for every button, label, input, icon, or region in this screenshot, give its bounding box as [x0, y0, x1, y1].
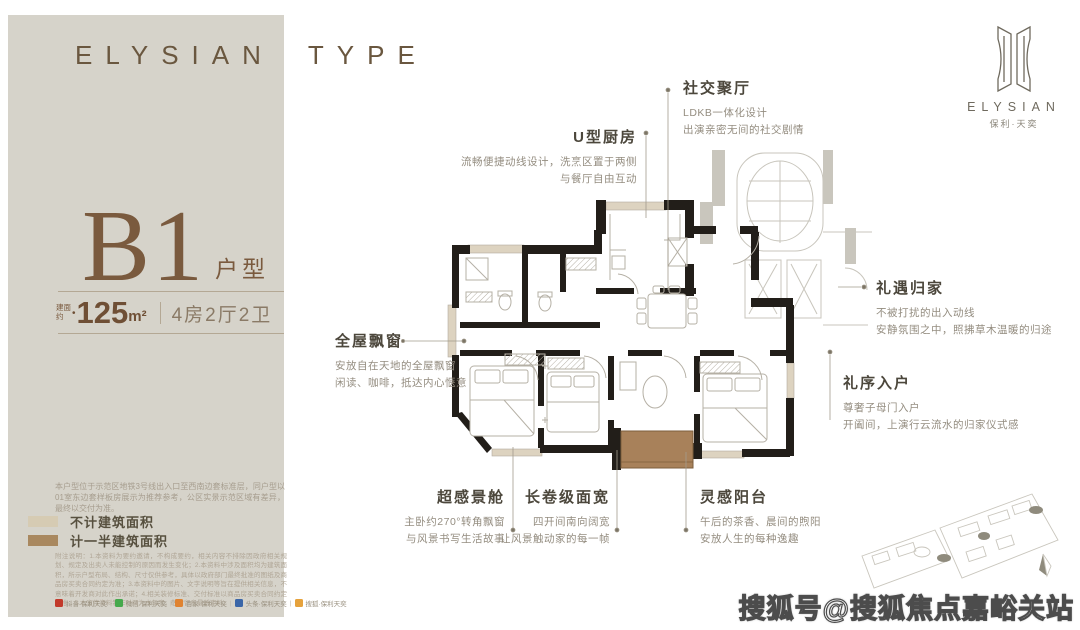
- anno-baywindow: 全屋飘窗 安放自在天地的全屋飘窗 闲读、咖啡，抵达内心惬意: [335, 330, 467, 392]
- social-label: 百家·保利天奕: [186, 598, 227, 608]
- project-logo: ELYSIAN 保利·天奕: [955, 24, 1073, 130]
- anno-entry: 礼序入户 尊奢子母门入户 开阖间，上演行云流水的归家仪式感: [843, 372, 1019, 434]
- site-map: [862, 494, 1058, 588]
- sidebar-note: 本户型位于示范区地铁3号线出入口至西南边套标准层，同户型以01室东边套样板房展示…: [55, 482, 285, 514]
- legend-swatch-light: [28, 516, 58, 527]
- anno-title: 超感景舱: [404, 486, 505, 507]
- anno-title: 长卷级面宽: [500, 486, 610, 507]
- sohu-watermark: 搜狐号@搜狐焦点嘉峪关站: [739, 587, 1074, 626]
- social-label: 搜狐·保利天奕: [306, 598, 347, 608]
- anno-title: U型厨房: [461, 126, 637, 147]
- plan-code-row: B1 户型: [82, 200, 269, 294]
- anno-body: 午后的茶香、晨间的煦阳 安放人生的每种逸趣: [700, 514, 821, 548]
- header-brand: ELYSIAN TYPE: [75, 40, 428, 71]
- brand-type: TYPE: [308, 40, 428, 71]
- legend-row-half-area: 计一半建筑面积: [28, 531, 168, 550]
- layout-spec: 4房2厅2卫: [172, 300, 273, 327]
- social-separator: |: [170, 600, 172, 607]
- sohu-icon: [295, 599, 303, 607]
- social-label: 头条·保利天奕: [246, 598, 287, 608]
- wechat-icon: [115, 599, 123, 607]
- anno-homecoming: 礼遇归家 不被打扰的出入动线 安静氛围之中，照拂草木温暖的归途: [876, 277, 1052, 339]
- balcony-area: [621, 431, 693, 468]
- legend-row-excluded-area: 不计建筑面积: [28, 512, 154, 531]
- legend-label-half: 计一半建筑面积: [70, 531, 168, 550]
- anno-social-hall: 社交聚厅 LDKB一体化设计 出演亲密无间的社交剧情: [683, 77, 804, 139]
- anno-viewcabin: 超感景舱 主卧约270°转角飘窗 与风景书写生活故事: [404, 486, 505, 548]
- area-unit: m²: [128, 308, 146, 325]
- social-label: 微信·保利天奕: [126, 598, 167, 608]
- brand-elysian: ELYSIAN: [75, 40, 274, 71]
- plan-code-suffix: 户型: [215, 250, 269, 284]
- anno-body: 安放自在天地的全屋飘窗 闲读、咖啡，抵达内心惬意: [335, 358, 467, 392]
- anno-body: 四开间南向阔宽 让风景触动家的每一帧: [500, 514, 610, 548]
- social-separator: |: [110, 600, 112, 607]
- area-prefix-bottom: 约: [56, 313, 71, 322]
- douyin-icon: [55, 599, 63, 607]
- toutiao-icon: [235, 599, 243, 607]
- logo-en: ELYSIAN: [955, 100, 1073, 114]
- divider-top: [58, 291, 284, 292]
- anno-body: 尊奢子母门入户 开阖间，上演行云流水的归家仪式感: [843, 400, 1019, 434]
- social-separator: |: [290, 600, 292, 607]
- legend-swatch-dark: [28, 535, 58, 546]
- anno-title: 礼遇归家: [876, 277, 1052, 298]
- social-separator: |: [230, 600, 232, 607]
- anno-title: 灵感阳台: [700, 486, 821, 507]
- logo-cn: 保利·天奕: [955, 117, 1073, 130]
- area-prefix: 建面 约: [56, 304, 71, 321]
- anno-widefront: 长卷级面宽 四开间南向阔宽 让风景触动家的每一帧: [500, 486, 610, 548]
- social-media-row: 抖音·保利天奕 | 微信·保利天奕 | 百家·保利天奕 | 头条·保利天奕 | …: [55, 598, 287, 608]
- logo-emblem-icon: [990, 24, 1038, 94]
- core-walls: [700, 150, 856, 264]
- plan-code: B1: [82, 200, 205, 294]
- anno-kitchen: U型厨房 流畅便捷动线设计，洗烹区置于两侧 与餐厅自由互动: [461, 126, 637, 188]
- area-row: 建面 约 • 125 m² 4房2厅2卫: [56, 295, 272, 331]
- anno-title: 礼序入户: [843, 372, 1019, 393]
- area-separator: [160, 302, 161, 324]
- area-dot: •: [72, 308, 76, 319]
- anno-body: 流畅便捷动线设计，洗烹区置于两侧 与餐厅自由互动: [461, 154, 637, 188]
- anno-body: LDKB一体化设计 出演亲密无间的社交剧情: [683, 105, 804, 139]
- anno-body: 主卧约270°转角飘窗 与风景书写生活故事: [404, 514, 505, 548]
- divider-bottom: [58, 333, 284, 334]
- anno-title: 全屋飘窗: [335, 330, 467, 351]
- area-value: 125: [77, 295, 129, 331]
- legend-label-excluded: 不计建筑面积: [70, 512, 154, 531]
- anno-body: 不被打扰的出入动线 安静氛围之中，照拂草木温暖的归途: [876, 305, 1052, 339]
- anno-balcony: 灵感阳台 午后的茶香、晨间的煦阳 安放人生的每种逸趣: [700, 486, 821, 548]
- anno-title: 社交聚厅: [683, 77, 804, 98]
- baijia-icon: [175, 599, 183, 607]
- social-label: 抖音·保利天奕: [66, 598, 107, 608]
